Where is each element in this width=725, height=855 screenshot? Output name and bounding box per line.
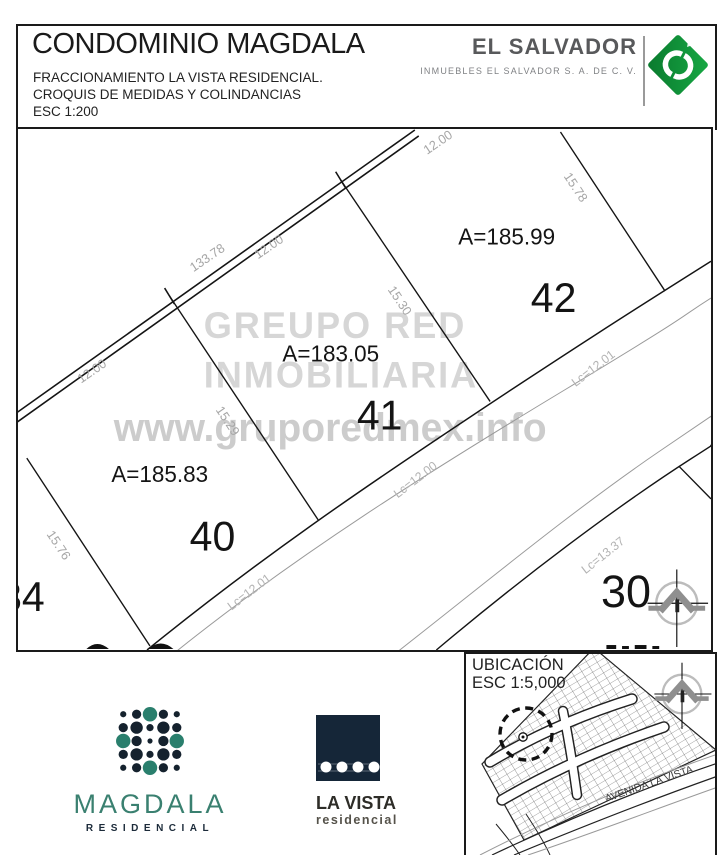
plot-map-frame: GREUPO RED INMOBILIARIA www.gruporedmex.… xyxy=(16,127,713,652)
lot41-number: 41 xyxy=(357,392,403,438)
brand-subtitle: INMUEBLES EL SALVADOR S. A. DE C. V. xyxy=(420,66,637,76)
lavista-logo: LA VISTA residencial xyxy=(316,715,400,827)
lot42-area: A=185.99 xyxy=(458,223,555,249)
magdala-logo: MAGDALA RESIDENCIAL xyxy=(58,706,242,834)
ubicacion-scale: ESC 1:5,000 xyxy=(472,674,566,693)
dim-street-total: 133.78 xyxy=(187,240,227,275)
lot40-number: 40 xyxy=(190,513,236,559)
ubicacion-title: UBICACIÓN xyxy=(472,656,564,675)
green-diamond-icon xyxy=(645,31,713,101)
watermark-line-3: www.gruporedmex.info xyxy=(113,406,547,450)
lot40-area: A=185.83 xyxy=(111,461,208,487)
curve-label-42: Lc=12.01 xyxy=(569,347,618,389)
curve-label-40: Lc=12.01 xyxy=(225,571,274,613)
dim-depth-42-right: 15.78 xyxy=(561,169,591,204)
lot34-number-clipped: 34 xyxy=(18,574,45,620)
croquis-page: CONDOMINIO MAGDALA FRACCIONAMIENTO LA VI… xyxy=(0,0,725,855)
lot42-number: 42 xyxy=(531,275,577,321)
header-box: CONDOMINIO MAGDALA FRACCIONAMIENTO LA VI… xyxy=(16,24,717,130)
lavista-name: LA VISTA xyxy=(316,793,400,814)
lot30-side-boundary xyxy=(679,466,711,499)
dim-depth-40-left: 15.76 xyxy=(44,527,74,562)
dim-frontage-42: 12.00 xyxy=(420,129,455,157)
magdala-subtitle: RESIDENCIAL xyxy=(58,823,242,834)
brand-name: EL SALVADOR xyxy=(472,34,637,60)
lot30-number: 30 xyxy=(601,566,651,617)
page-title: CONDOMINIO MAGDALA xyxy=(32,28,365,61)
lavista-subtitle: residencial xyxy=(316,813,400,827)
subtitle-line-2: CROQUIS DE MEDIDAS Y COLINDANCIAS xyxy=(33,87,301,102)
ubicacion-box: AVENIDA LA VISTA UBICACIÓN ESC 1:5,000 xyxy=(464,652,717,855)
lot41-area: A=183.05 xyxy=(282,340,379,366)
lot42-right-boundary xyxy=(560,132,665,291)
scale-label: ESC 1:200 xyxy=(33,104,98,119)
lavista-square-icon xyxy=(316,715,382,783)
subtitle-line-1: FRACCIONAMIENTO LA VISTA RESIDENCIAL. xyxy=(33,70,323,85)
magdala-dots-icon xyxy=(115,706,185,776)
dim-frontage-41: 12.00 xyxy=(251,231,286,262)
north-arrow-icon xyxy=(647,569,708,647)
magdala-name: MAGDALA xyxy=(58,789,242,820)
plot-map: GREUPO RED INMOBILIARIA www.gruporedmex.… xyxy=(18,129,711,650)
watermark: GREUPO RED INMOBILIARIA www.gruporedmex.… xyxy=(113,305,547,451)
clipped-text-fragments xyxy=(86,644,659,649)
